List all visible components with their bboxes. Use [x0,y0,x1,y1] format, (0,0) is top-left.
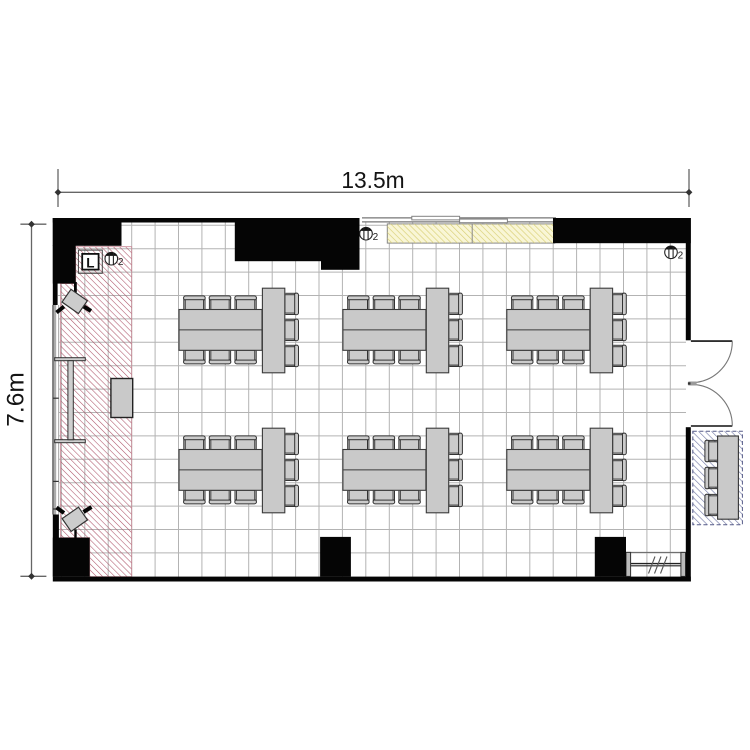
svg-text:13.5m: 13.5m [341,167,404,193]
svg-text:L: L [86,255,94,270]
svg-text:7.6m: 7.6m [3,372,30,426]
